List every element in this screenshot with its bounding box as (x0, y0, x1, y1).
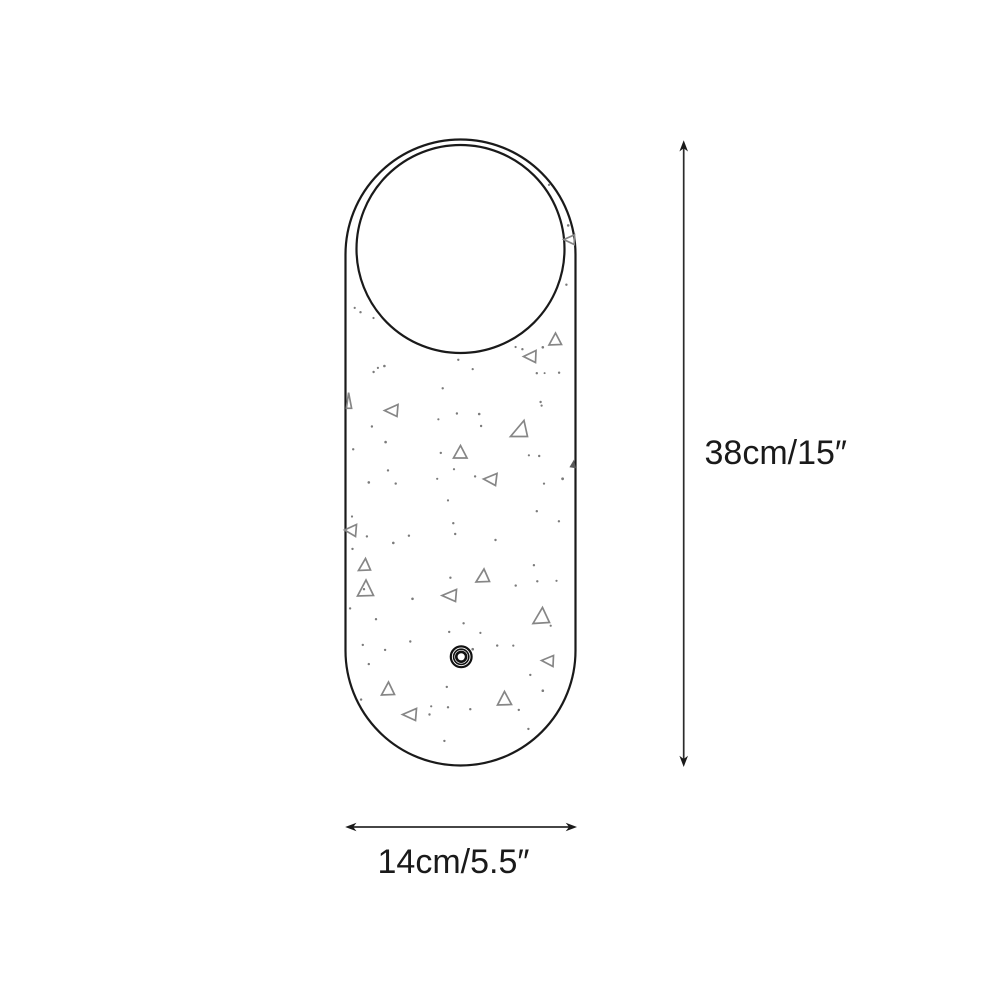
svg-text:38cm/15″: 38cm/15″ (705, 434, 847, 472)
svg-text:14cm/5.5″: 14cm/5.5″ (378, 843, 530, 881)
